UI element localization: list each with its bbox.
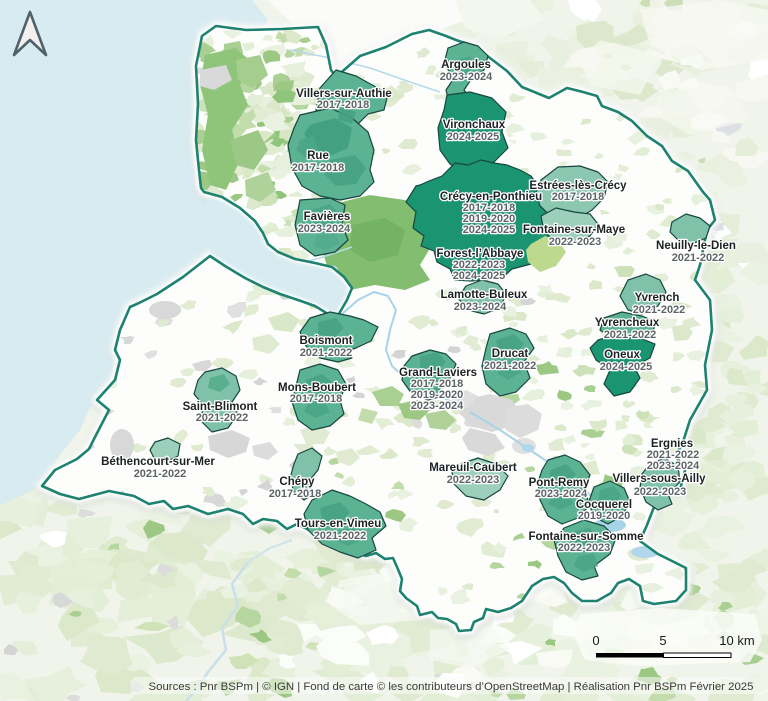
svg-text:Chépy: Chépy xyxy=(279,476,315,488)
svg-text:2022-2023: 2022-2023 xyxy=(558,542,611,554)
svg-text:2023-2024: 2023-2024 xyxy=(440,71,493,83)
svg-text:2021-2022: 2021-2022 xyxy=(672,252,725,264)
svg-text:2021-2022: 2021-2022 xyxy=(484,360,537,372)
svg-text:2022-2023: 2022-2023 xyxy=(447,474,500,486)
svg-text:2023-2024: 2023-2024 xyxy=(454,301,507,313)
svg-text:2021-2022: 2021-2022 xyxy=(314,530,367,542)
svg-text:Yvrencheux: Yvrencheux xyxy=(595,317,660,329)
svg-text:2021-2022: 2021-2022 xyxy=(300,347,353,359)
svg-text:Rue: Rue xyxy=(307,150,329,162)
svg-text:Lamotte-Buleux: Lamotte-Buleux xyxy=(441,289,529,301)
svg-text:Drucat: Drucat xyxy=(492,348,529,360)
svg-text:2021-2022: 2021-2022 xyxy=(134,468,187,480)
svg-text:2017-2018: 2017-2018 xyxy=(317,99,370,111)
svg-text:2021-2022: 2021-2022 xyxy=(196,412,249,424)
svg-text:Tours-en-Vimeu: Tours-en-Vimeu xyxy=(295,518,381,530)
svg-text:Villers-sous-Ailly: Villers-sous-Ailly xyxy=(612,473,706,485)
svg-text:2022-2023: 2022-2023 xyxy=(549,236,602,248)
svg-text:2023-2024: 2023-2024 xyxy=(411,400,464,412)
svg-text:2023-2024: 2023-2024 xyxy=(298,223,351,235)
svg-text:Favières: Favières xyxy=(304,211,351,223)
svg-text:2024-2025: 2024-2025 xyxy=(447,131,500,143)
svg-text:Fontaine-sur-Maye: Fontaine-sur-Maye xyxy=(523,224,625,236)
svg-text:2019-2020: 2019-2020 xyxy=(578,510,631,522)
svg-text:Vironchaux: Vironchaux xyxy=(443,119,506,131)
svg-text:10 km: 10 km xyxy=(719,633,754,648)
svg-text:Mareuil-Caubert: Mareuil-Caubert xyxy=(429,462,517,474)
svg-text:Boismont: Boismont xyxy=(299,335,352,347)
svg-text:5: 5 xyxy=(659,633,666,648)
svg-text:Neuilly-le-Dien: Neuilly-le-Dien xyxy=(656,240,736,252)
svg-text:2017-2018: 2017-2018 xyxy=(290,393,343,405)
svg-text:2024-2025: 2024-2025 xyxy=(600,361,653,373)
svg-text:Oneux: Oneux xyxy=(604,349,640,361)
svg-text:2023-2024: 2023-2024 xyxy=(647,460,700,472)
svg-text:2024-2025: 2024-2025 xyxy=(463,224,516,236)
svg-text:Yvrench: Yvrench xyxy=(635,292,680,304)
svg-text:2021-2022: 2021-2022 xyxy=(633,304,686,316)
svg-text:2017-2018: 2017-2018 xyxy=(292,162,345,174)
svg-text:0: 0 xyxy=(592,633,599,648)
svg-text:2017-2018: 2017-2018 xyxy=(552,191,605,203)
svg-text:2017-2018: 2017-2018 xyxy=(269,488,322,500)
svg-text:Argoules: Argoules xyxy=(441,59,491,71)
svg-text:Sources : Pnr BSPm | © IGN | F: Sources : Pnr BSPm | © IGN | Fond de car… xyxy=(149,681,754,693)
svg-text:2021-2022: 2021-2022 xyxy=(604,329,657,341)
svg-text:Béthencourt-sur-Mer: Béthencourt-sur-Mer xyxy=(101,456,215,468)
svg-text:2024-2025: 2024-2025 xyxy=(453,270,506,282)
svg-text:2022-2023: 2022-2023 xyxy=(634,486,687,498)
